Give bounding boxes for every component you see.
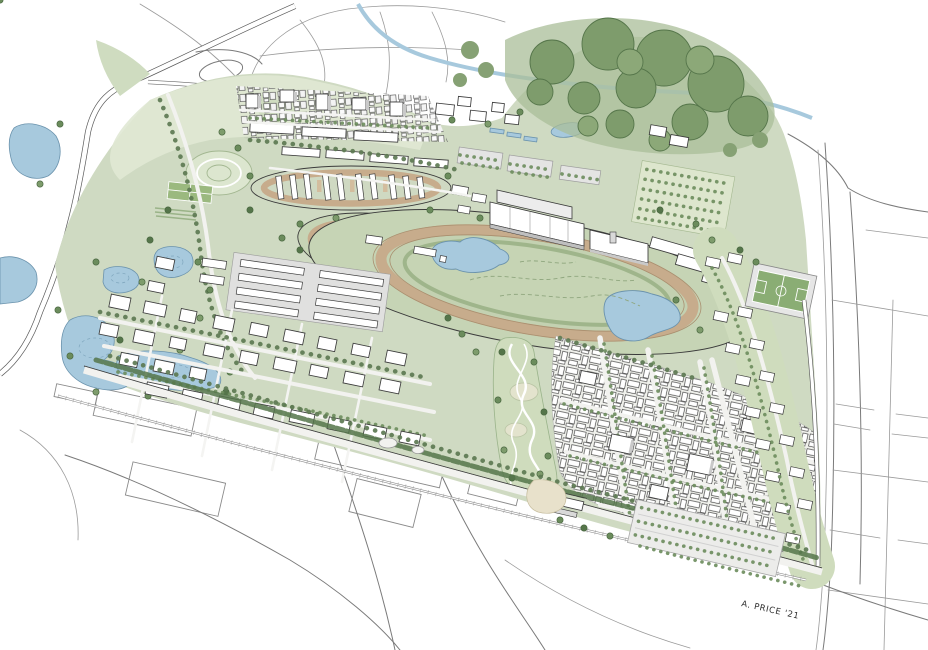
east-street-grid: [828, 300, 928, 650]
masterplan-illustration-svg: A. PRICE '21: [0, 0, 928, 650]
artist-signature: A. PRICE '21: [740, 599, 800, 622]
farm-fields: [140, 4, 505, 94]
masterplan-illustration: A. PRICE '21: [0, 0, 928, 650]
